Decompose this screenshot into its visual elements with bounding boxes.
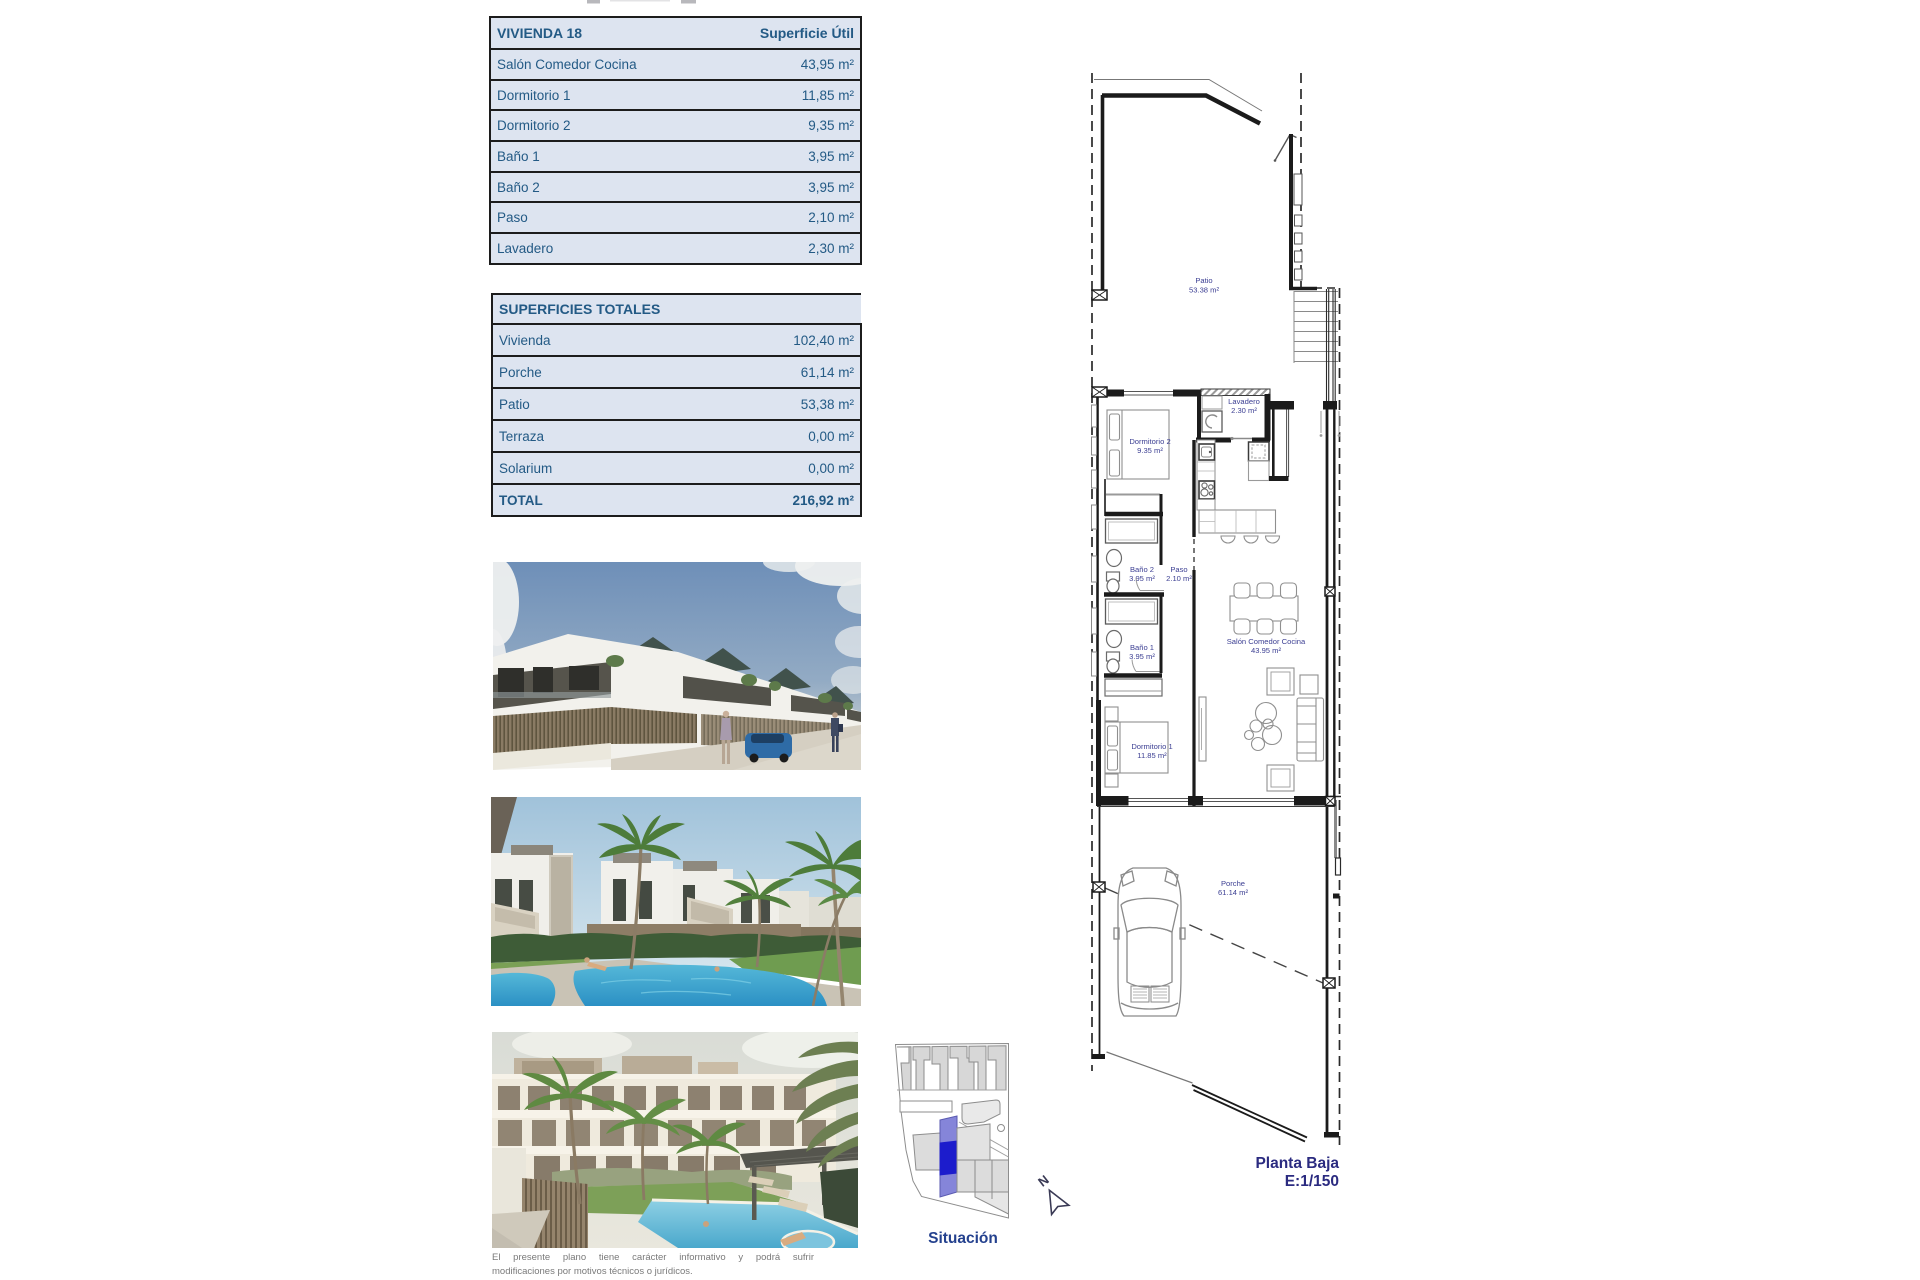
svg-text:E:1/150: E:1/150: [1285, 1173, 1339, 1190]
svg-text:N: N: [1035, 1172, 1052, 1190]
svg-text:Dormitorio 1: Dormitorio 1: [1131, 742, 1172, 751]
svg-text:Lavadero: Lavadero: [1228, 397, 1260, 406]
svg-text:Porche: Porche: [1221, 879, 1245, 888]
svg-text:61.14 m²: 61.14 m²: [1218, 888, 1248, 897]
svg-text:Dormitorio 2: Dormitorio 2: [1129, 437, 1170, 446]
svg-text:2.30 m²: 2.30 m²: [1231, 406, 1257, 415]
svg-text:Patio: Patio: [1195, 276, 1212, 285]
svg-text:Salón Comedor Cocina: Salón Comedor Cocina: [1227, 637, 1306, 646]
svg-text:Planta Baja: Planta Baja: [1255, 1155, 1339, 1172]
svg-text:Baño 1: Baño 1: [1130, 643, 1154, 652]
svg-text:43.95 m²: 43.95 m²: [1251, 646, 1281, 655]
svg-text:11.85 m²: 11.85 m²: [1137, 751, 1167, 760]
svg-text:3.95 m²: 3.95 m²: [1129, 574, 1155, 583]
svg-text:9.35 m²: 9.35 m²: [1137, 446, 1163, 455]
svg-text:53.38 m²: 53.38 m²: [1189, 286, 1219, 295]
svg-text:Paso: Paso: [1170, 565, 1187, 574]
svg-text:Baño 2: Baño 2: [1130, 565, 1154, 574]
svg-text:Situación: Situación: [928, 1230, 998, 1247]
svg-text:2.10 m²: 2.10 m²: [1166, 574, 1192, 583]
svg-text:3.95 m²: 3.95 m²: [1129, 652, 1155, 661]
